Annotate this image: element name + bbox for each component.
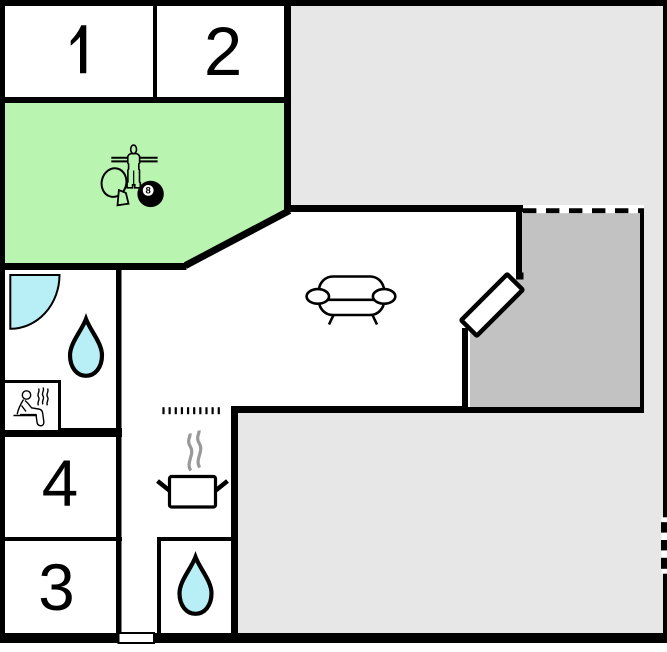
svg-text:4: 4: [42, 447, 78, 520]
svg-text:2: 2: [204, 13, 242, 90]
svg-text:3: 3: [38, 551, 74, 624]
svg-text:8: 8: [146, 186, 151, 197]
